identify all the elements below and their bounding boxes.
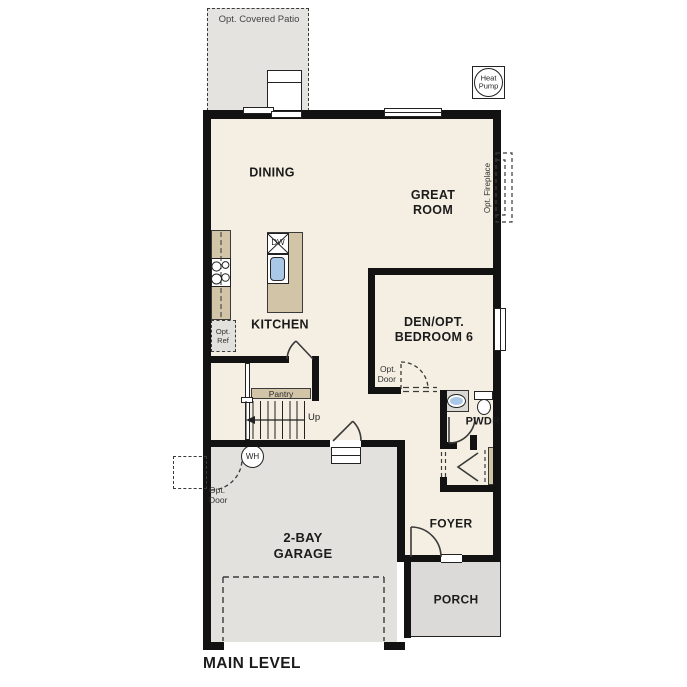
fireplace-chimney [267, 70, 302, 111]
stair-wall-opening [241, 397, 253, 403]
great-room-label: GREAT ROOM [411, 188, 455, 218]
wall-garage-bottom-right [384, 642, 405, 650]
bedroom-window-line [500, 309, 501, 350]
opt-ref-line1: Opt. [216, 327, 230, 336]
main-level-title: MAIN LEVEL [203, 655, 301, 673]
wall-powder-stub [440, 442, 457, 449]
garage-line1: 2-BAY [274, 530, 333, 546]
garage-label: 2-BAY GARAGE [274, 530, 333, 562]
dining-label: DINING [249, 166, 295, 181]
wall-stair-top [203, 356, 289, 363]
opt-door-bedroom-label: Opt. Door [378, 364, 396, 384]
garage-step-2 [331, 455, 361, 464]
opt-door-landing [173, 456, 207, 489]
garage-line2: GARAGE [274, 546, 333, 562]
wall-bedroom-top [368, 268, 493, 275]
den-line1: DEN/OPT. [395, 315, 473, 330]
pantry-label: Pantry [269, 389, 294, 399]
opt-door-garage-label: Opt. Door [209, 485, 227, 505]
fireplace-label: Opt. Fireplace [483, 163, 493, 213]
wall-garage-top-a [203, 440, 330, 447]
wall-powder-left-upper [440, 390, 447, 449]
wall-bedroom-left [368, 268, 375, 394]
toilet-bowl [477, 399, 491, 415]
fireplace-chimney-line [268, 82, 301, 83]
opt-ref-line2: Ref [216, 336, 230, 345]
foyer-label: FOYER [430, 517, 473, 532]
opt-door-bedroom-line2: Door [378, 374, 396, 384]
wall-porch-left [404, 558, 411, 638]
cooktop [211, 258, 231, 287]
wall-hall-bottom [440, 485, 493, 492]
kitchen-label: KITCHEN [251, 318, 309, 333]
heat-pump-line2: Pump [479, 83, 499, 92]
up-label: Up [308, 413, 320, 423]
opt-door-bedroom-line1: Opt. [378, 364, 396, 374]
wall-bedroom-bottom [368, 387, 401, 394]
den-label: DEN/OPT. BEDROOM 6 [395, 315, 473, 345]
patio-label: Opt. Covered Patio [219, 15, 300, 25]
front-door-threshold [441, 554, 462, 563]
great-room-line2: ROOM [411, 203, 455, 218]
den-line2: BEDROOM 6 [395, 330, 473, 345]
patio-slider-pane-b [271, 111, 302, 118]
wall-left [203, 110, 211, 650]
wh-label: WH [246, 452, 259, 462]
powder-label: PWDR [466, 415, 501, 430]
porch-label: PORCH [434, 593, 479, 608]
heat-pump-label: Heat Pump [479, 74, 499, 91]
opt-door-garage-line2: Door [209, 495, 227, 505]
wall-closet-stub [470, 435, 477, 450]
wall-garage-bottom-left [203, 642, 224, 650]
opt-door-garage-line1: Opt. [209, 485, 227, 495]
wall-garage-right [397, 440, 405, 562]
floor-plan: DINING GREAT ROOM KITCHEN DEN/OPT. BEDRO… [0, 0, 687, 687]
opt-ref-label: Opt. Ref [216, 327, 230, 345]
powder-sink-basin [447, 394, 466, 408]
dw-label: DW [271, 238, 284, 248]
great-room-window-line [385, 112, 441, 113]
wall-pantry-right [312, 356, 319, 401]
sink-basin [270, 257, 285, 281]
patio-slider-pane-a [243, 107, 274, 114]
great-room-line1: GREAT [411, 188, 455, 203]
